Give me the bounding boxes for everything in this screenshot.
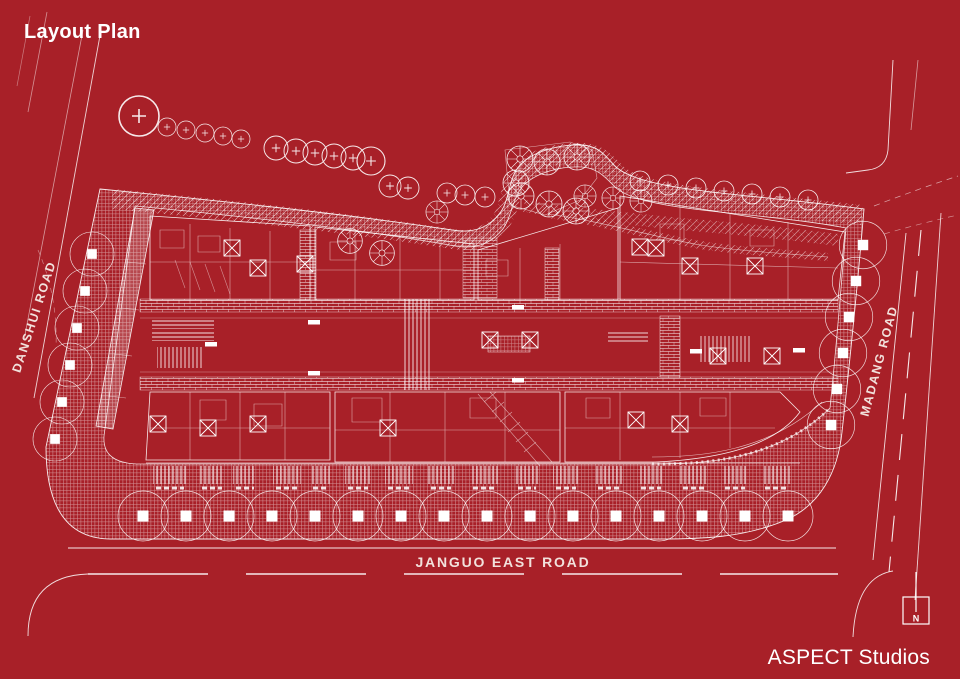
awning-modules — [153, 466, 790, 484]
page-title: Layout Plan — [24, 21, 141, 44]
lane-crosswalk — [402, 299, 432, 390]
north-arrow-label: N — [913, 614, 920, 624]
site-plan-drawing: DANSHUI ROAD MADANG ROAD JANGUO EAST ROA… — [0, 0, 960, 679]
madang-road-lines — [846, 60, 958, 637]
janguo-east-road-label: JANGUO EAST ROAD — [415, 554, 590, 570]
studio-credit: ASPECT Studios — [768, 646, 930, 670]
danshui-road-label: DANSHUI ROAD — [10, 259, 59, 374]
layout-plan-sheet: DANSHUI ROAD MADANG ROAD JANGUO EAST ROA… — [0, 0, 960, 679]
madang-road-label: MADANG ROAD — [858, 304, 901, 418]
north-arrow-icon: N — [903, 572, 929, 624]
